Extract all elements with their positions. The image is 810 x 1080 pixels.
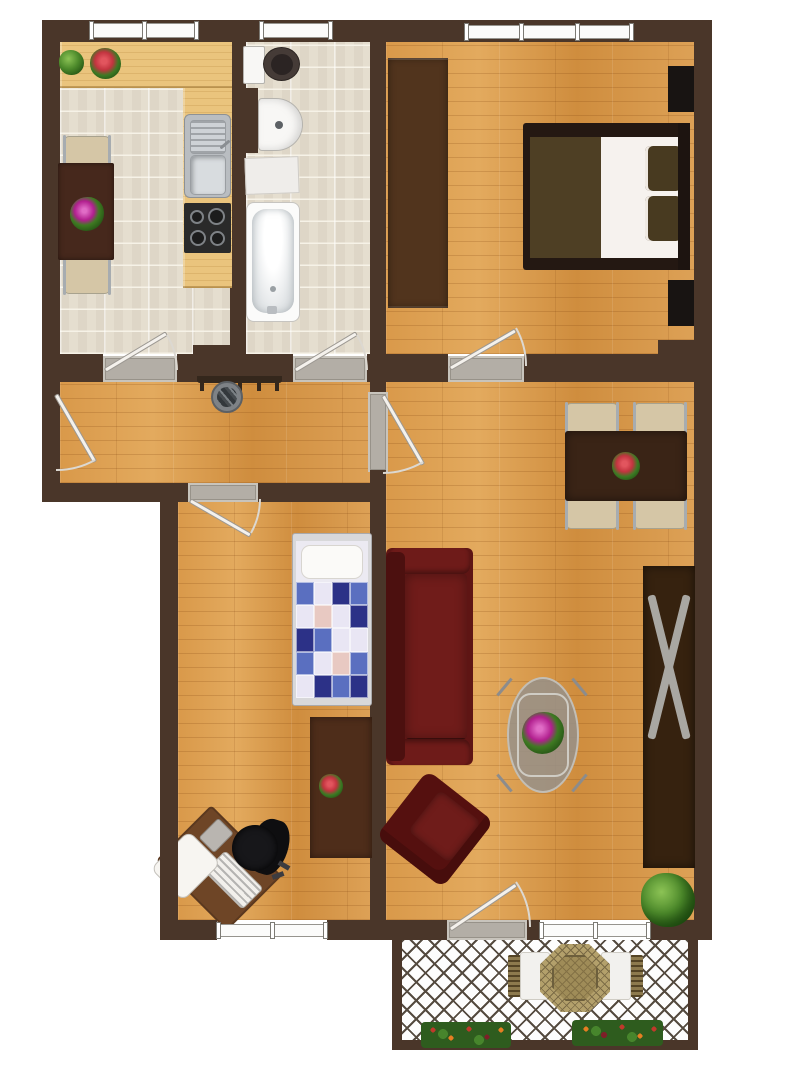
wall-jut-bedroom	[658, 340, 694, 356]
basin-faucet	[275, 121, 283, 129]
bedroom-wardrobe	[388, 58, 448, 308]
wall-bottom-seg1	[160, 920, 217, 940]
balcony-border-right	[688, 940, 698, 1050]
dining-chair	[566, 498, 618, 529]
child-window	[217, 924, 327, 937]
bathtub-inner	[252, 209, 294, 313]
nightstand-bottom	[668, 280, 694, 326]
dining-table-flowers	[612, 452, 640, 480]
living-window	[540, 924, 650, 937]
floor-plan	[0, 0, 810, 1080]
kitchen-window	[90, 23, 198, 38]
bath-mat	[244, 156, 299, 195]
wall-bottom-seg2	[327, 920, 447, 940]
child-sideboard-flowers	[319, 774, 343, 798]
wall-mid-seg1	[42, 354, 103, 382]
wall-hall-bottom-right	[258, 483, 370, 502]
kitchen-plant-green	[59, 50, 84, 75]
bathroom-door-threshold	[293, 356, 367, 382]
coat-hook	[257, 383, 261, 391]
burner	[190, 230, 206, 246]
burner	[208, 208, 225, 225]
living-sideboard	[643, 566, 695, 868]
bathtub-drain	[270, 286, 276, 292]
kitchen-sink	[184, 114, 231, 198]
child-bed-quilt	[296, 582, 368, 698]
coat-hook	[275, 383, 279, 391]
office-chair	[226, 817, 290, 881]
bathroom-wall-jut	[243, 88, 258, 153]
balcony-flower-box-left	[421, 1022, 511, 1048]
sofa-backrest	[386, 552, 405, 761]
burner	[210, 231, 225, 246]
toilet-bowl	[263, 47, 300, 81]
double-bed	[523, 123, 690, 270]
kitchen-counter-top	[60, 42, 232, 88]
toilet-tank	[243, 46, 265, 84]
bedroom-window	[465, 25, 633, 39]
bed-pillow	[645, 196, 681, 241]
wall-child-left	[160, 483, 178, 938]
child-door-threshold	[188, 483, 258, 502]
wall-center-vertical-upper	[370, 20, 386, 392]
bathroom-window	[260, 23, 332, 38]
nightstand-top	[668, 66, 694, 112]
bed-headboard	[678, 123, 690, 270]
wall-center-vertical-lower	[370, 470, 386, 920]
dining-chair	[634, 403, 686, 434]
coat-rack	[197, 376, 282, 383]
balcony-flower-box-right	[572, 1020, 663, 1046]
coat-hook	[200, 383, 204, 391]
sofa	[386, 548, 473, 765]
dining-chair	[566, 403, 618, 434]
living-corner-plant	[641, 873, 695, 927]
wall-left	[42, 20, 60, 502]
office-chair-seat	[232, 825, 278, 871]
bathtub	[246, 202, 300, 322]
balcony-border-left	[392, 940, 402, 1050]
bed-blanket	[530, 137, 601, 258]
dining-chair	[634, 498, 686, 529]
sofa-seat	[405, 574, 467, 739]
umbrella-stand	[211, 381, 243, 413]
bed-pillow	[645, 146, 681, 191]
office-chair-leg	[278, 860, 291, 870]
burner	[190, 210, 204, 224]
wall-right	[694, 20, 712, 938]
child-bed-pillow	[301, 545, 363, 579]
sink-basin	[190, 155, 226, 195]
wall-mid-seg4	[524, 354, 712, 382]
child-bed	[292, 533, 372, 706]
stove	[184, 203, 231, 253]
kitchen-chair-bottom	[64, 256, 110, 294]
bathtub-faucet	[267, 306, 277, 314]
wall-mid-seg3	[367, 354, 448, 382]
balcony-table	[540, 944, 610, 1012]
balcony-seat-back-right	[630, 955, 643, 997]
kitchen-door-threshold	[103, 356, 177, 382]
balcony-table-inner	[552, 955, 598, 1001]
kitchen-plant-flowers	[90, 48, 121, 79]
